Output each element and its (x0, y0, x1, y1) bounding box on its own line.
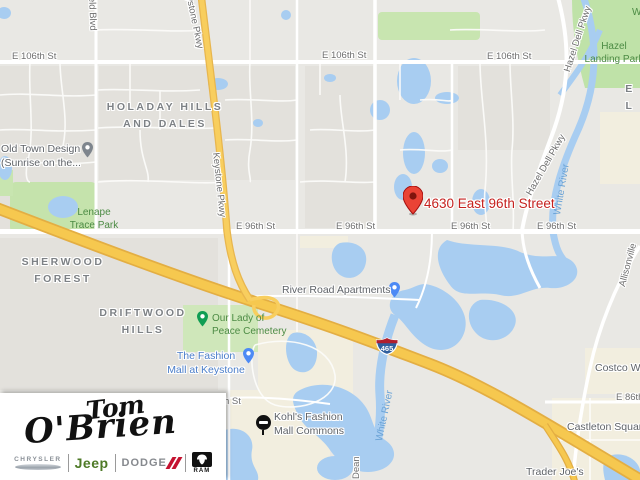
neighborhood-partial-el: E L (620, 81, 640, 115)
poi-label-kohls-commons[interactable]: Kohl's Fashion Mall Commons (274, 410, 344, 438)
ram-wordmark: RAM (194, 468, 211, 474)
neighborhood-holaday-hills: HOLADAY HILLS AND DALES (104, 99, 226, 133)
dealer-name-obrien: O'Brien (23, 402, 178, 453)
park-label-partial-w: W (632, 6, 640, 19)
road-label-field-blvd: field Blvd (86, 0, 98, 31)
shield-number: 465 (381, 344, 394, 353)
brand-divider (115, 454, 116, 472)
poi-label-river-road-apartments[interactable]: River Road Apartments (282, 283, 391, 297)
street-label-e96th-3: E 96th St (451, 221, 490, 232)
chrysler-wordmark: CHRYSLER (14, 456, 62, 463)
dealer-signature: Tom O'Brien (0, 393, 226, 449)
street-label-e86th: E 86th St (616, 392, 640, 403)
street-label-partial: h St (224, 396, 241, 407)
dealer-logo: Tom O'Brien CHRYSLER Jeep DODGE (0, 393, 226, 480)
poi-label-old-town-design[interactable]: Old Town Design (Sunrise on the... (1, 142, 81, 170)
street-label-e106th-3: E 106th St (487, 51, 531, 62)
brand-divider (68, 454, 69, 472)
dodge-logo: DODGE (122, 457, 179, 469)
brand-divider (185, 454, 186, 472)
poi-label-trader-joes[interactable]: Trader Joe's (526, 465, 584, 479)
street-label-e106th-1: E 106th St (12, 51, 56, 62)
street-label-e96th-1: E 96th St (236, 221, 275, 232)
map-view[interactable]: 465 E 106th St E 106th St E 106th St E 9… (0, 0, 640, 480)
old-town-design-pin-icon[interactable] (82, 142, 93, 163)
street-label-e96th-2: E 96th St (336, 221, 375, 232)
street-label-e96th-4: E 96th St (537, 221, 576, 232)
neighborhood-sherwood-forest: SHERWOOD FOREST (18, 254, 108, 288)
ram-head-icon (192, 452, 212, 467)
destination-address-label[interactable]: 4630 East 96th Street (424, 196, 555, 211)
poi-label-fashion-mall[interactable]: The Fashion Mall at Keystone (166, 349, 246, 377)
jeep-logo: Jeep (75, 455, 109, 471)
poi-label-costco[interactable]: Costco Wholesale (595, 361, 640, 375)
road-label-dean: Dean (351, 456, 362, 479)
brand-row: CHRYSLER Jeep DODGE RAM (0, 452, 226, 474)
poi-label-castleton-square[interactable]: Castleton Square (567, 420, 640, 434)
kohls-store-icon-stem (262, 430, 264, 435)
park-label-our-lady-of-peace[interactable]: Our Lady of Peace Cemetery (212, 312, 286, 338)
neighborhood-driftwood-hills: DRIFTWOOD HILLS (98, 305, 188, 339)
chrysler-logo: CHRYSLER (14, 456, 62, 470)
kohls-store-icon[interactable] (256, 415, 271, 430)
dodge-wordmark: DODGE (122, 457, 167, 469)
cemetery-pin-icon[interactable] (197, 311, 208, 332)
park-label-hazel-landing: Hazel Landing Park (578, 40, 640, 66)
destination-marker-icon[interactable] (403, 186, 423, 221)
ram-logo: RAM (192, 452, 212, 474)
street-label-e106th-2: E 106th St (322, 50, 366, 61)
chrysler-wing-icon (15, 464, 61, 470)
park-label-lenape-trace: Lenape Trace Park (56, 206, 132, 232)
